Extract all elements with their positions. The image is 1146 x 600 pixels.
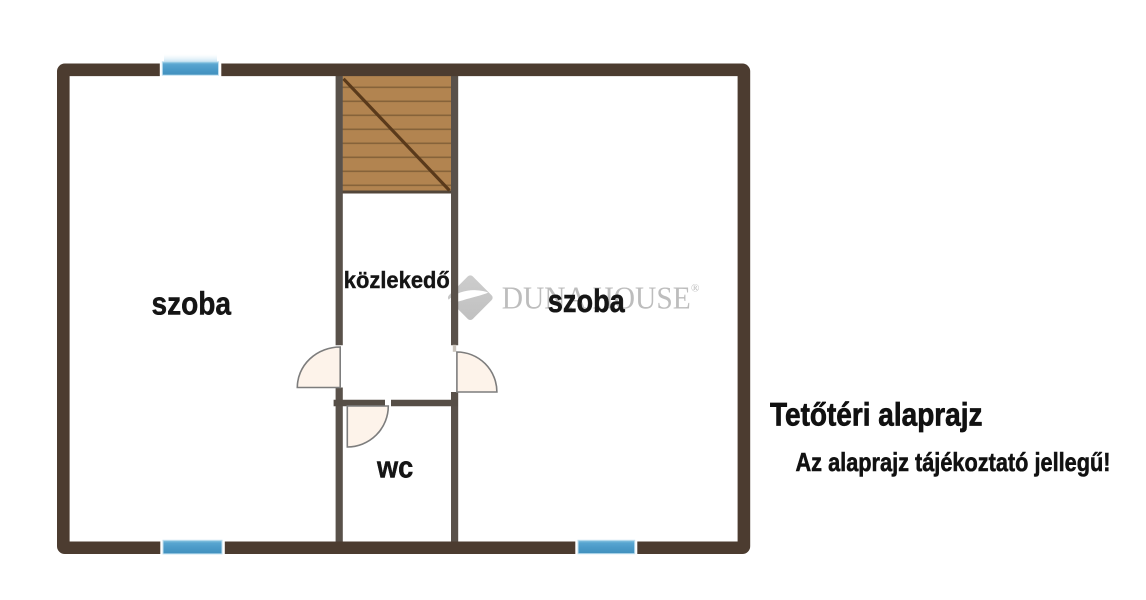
svg-text:közlekedő: közlekedő [344, 267, 450, 293]
svg-text:Az alaprajz tájékoztató jelleg: Az alaprajz tájékoztató jellegű! [796, 447, 1111, 477]
svg-text:Tetőtéri alaprajz: Tetőtéri alaprajz [770, 397, 983, 433]
svg-text:szoba: szoba [548, 283, 625, 319]
svg-text:wc: wc [376, 449, 413, 484]
svg-text:szoba: szoba [152, 286, 232, 322]
